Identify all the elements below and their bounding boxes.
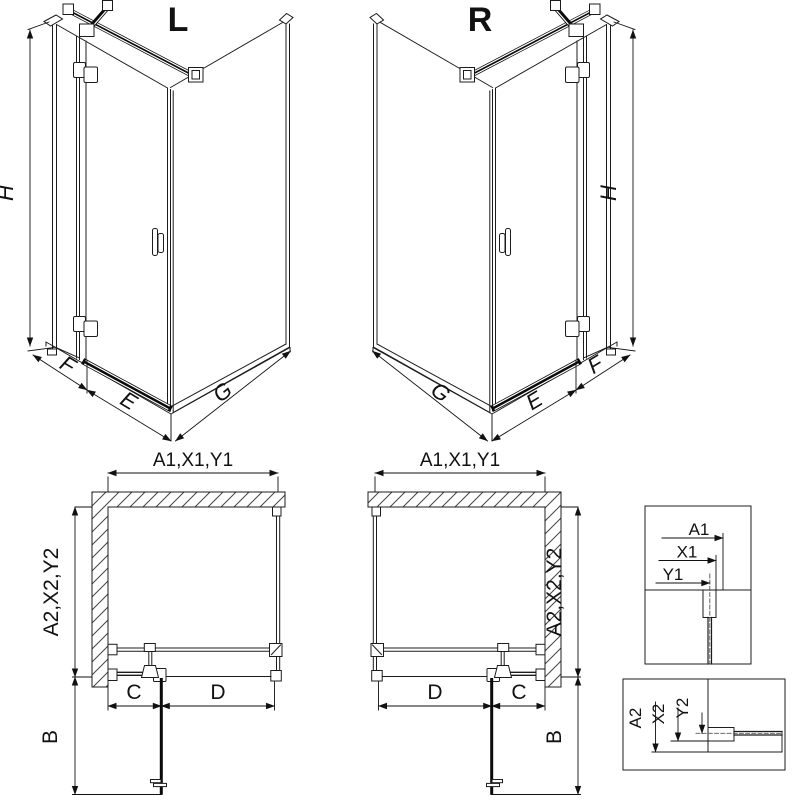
plan-left-fixed-label: C bbox=[126, 681, 141, 704]
detail-depth-x-label: X2 bbox=[649, 704, 668, 725]
plan-right-width-label: A1,X1,Y1 bbox=[420, 450, 500, 471]
iso-left-height-label: H bbox=[0, 185, 18, 201]
plan-right-swing-label: B bbox=[543, 730, 566, 744]
detail-width-y-label: Y1 bbox=[663, 565, 684, 584]
detail-depth-y-label: Y2 bbox=[673, 698, 692, 719]
iso-left-title: L bbox=[168, 1, 189, 39]
detail-width-a-label: A1 bbox=[689, 520, 710, 539]
plan-left-swing-label: B bbox=[39, 730, 62, 744]
plan-right-door-label: D bbox=[427, 681, 442, 704]
plan-right-depth-label: A2,X2,Y2 bbox=[543, 548, 566, 637]
plan-left-width-label: A1,X1,Y1 bbox=[153, 450, 233, 471]
iso-right-title: R bbox=[468, 1, 493, 39]
iso-right-height-label: H bbox=[596, 185, 621, 201]
detail-width-x-label: X1 bbox=[677, 543, 698, 562]
drawing-canvas: L R H F E G H F E G A1,X1,Y1 A2,X2,Y2 C … bbox=[0, 0, 800, 800]
shower-enclosure-technical-drawing: L R H F E G H F E G A1,X1,Y1 A2,X2,Y2 C … bbox=[0, 0, 800, 800]
detail-depth-a-label: A2 bbox=[626, 708, 645, 729]
plan-left-depth-label: A2,X2,Y2 bbox=[40, 548, 63, 637]
plan-right-fixed-label: C bbox=[511, 681, 526, 704]
plan-left-door-label: D bbox=[210, 681, 225, 704]
